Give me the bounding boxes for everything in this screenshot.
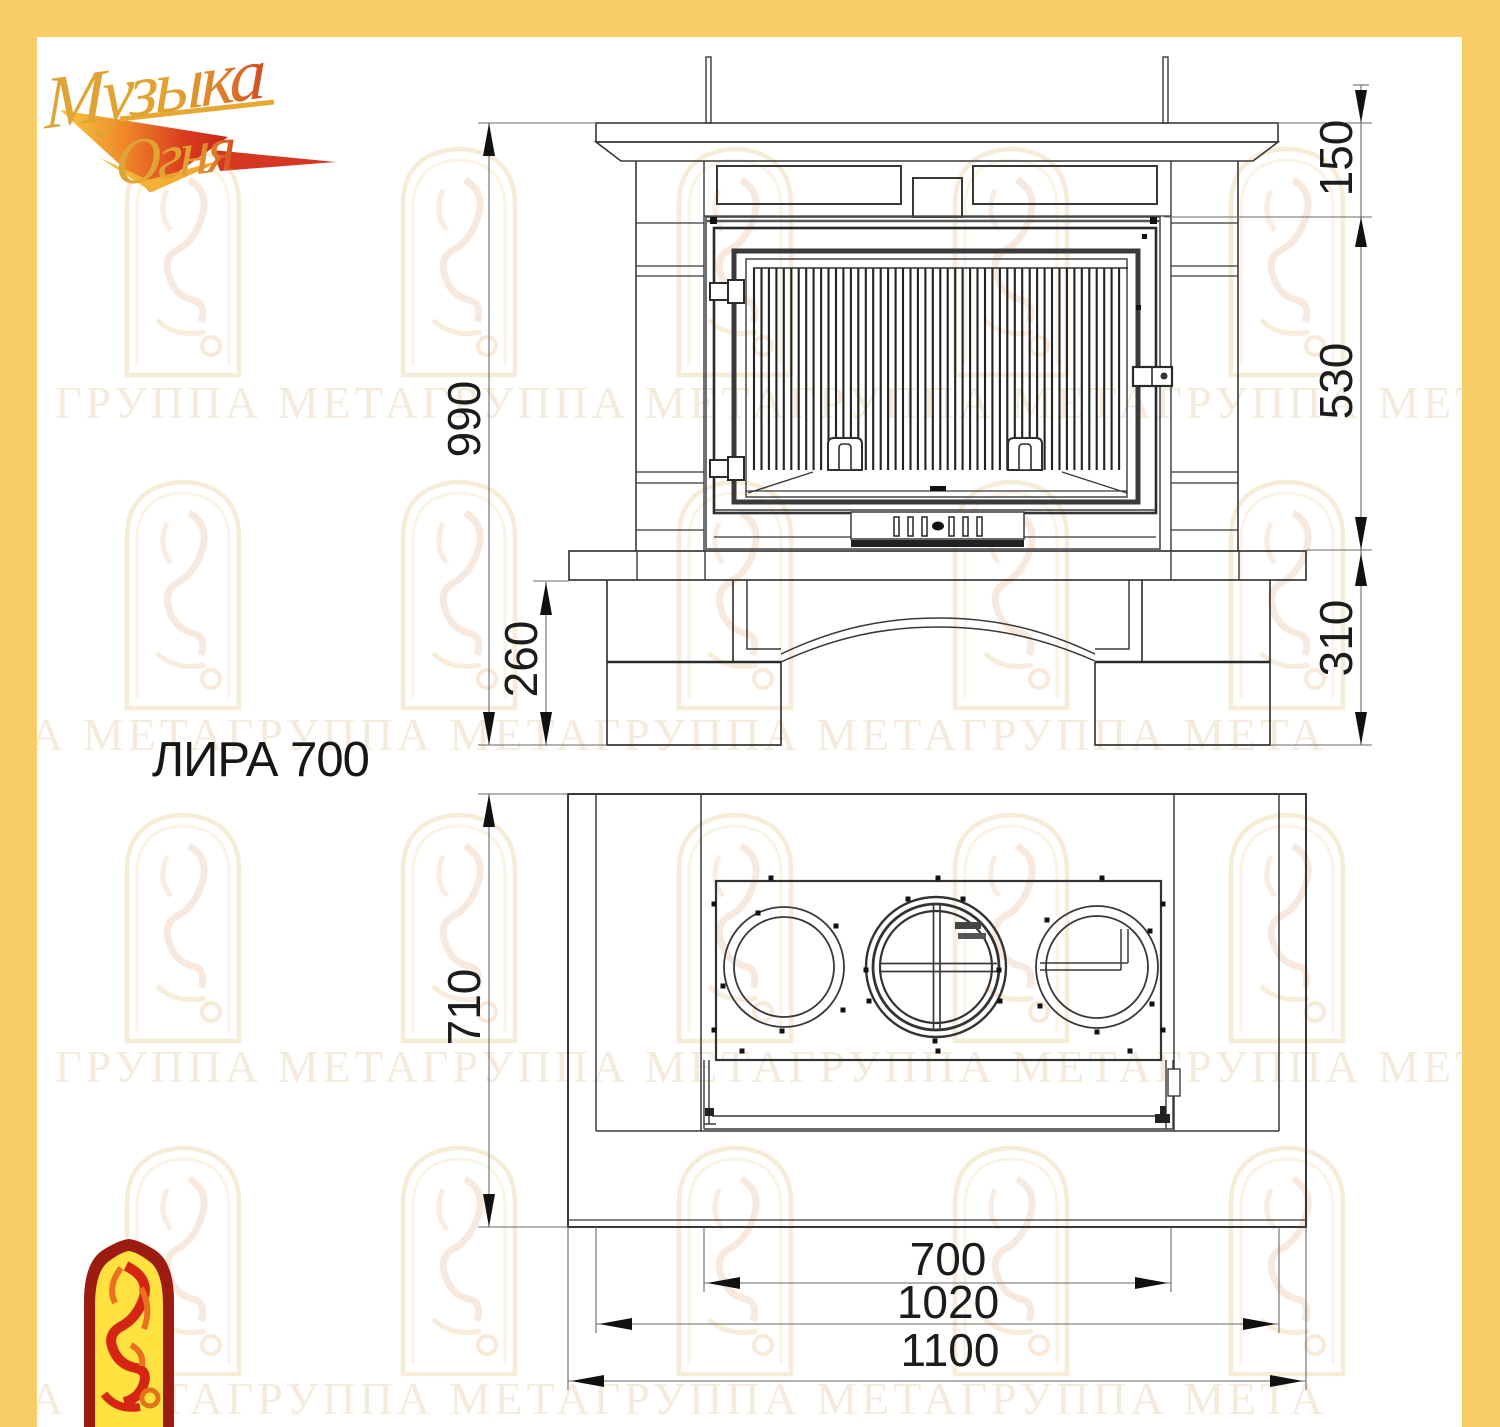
- svg-text:260: 260: [495, 621, 547, 698]
- svg-text:710: 710: [438, 969, 490, 1046]
- svg-text:990: 990: [438, 381, 490, 458]
- svg-text:530: 530: [1310, 343, 1362, 420]
- svg-text:150: 150: [1310, 120, 1362, 197]
- svg-text:ГРУППА МЕТАГРУППА МЕТАГРУППА М: ГРУППА МЕТАГРУППА МЕТАГРУППА МЕТАГРУППА …: [55, 377, 1500, 428]
- svg-text:ЛИРА 700: ЛИРА 700: [152, 733, 369, 787]
- svg-text:ГРУППА МЕТАГРУППА МЕТАГРУППА М: ГРУППА МЕТАГРУППА МЕТАГРУППА МЕТАГРУППА …: [55, 1041, 1500, 1092]
- svg-text:1020: 1020: [897, 1276, 999, 1328]
- svg-text:1100: 1100: [901, 1324, 1000, 1376]
- svg-text:310: 310: [1310, 600, 1362, 677]
